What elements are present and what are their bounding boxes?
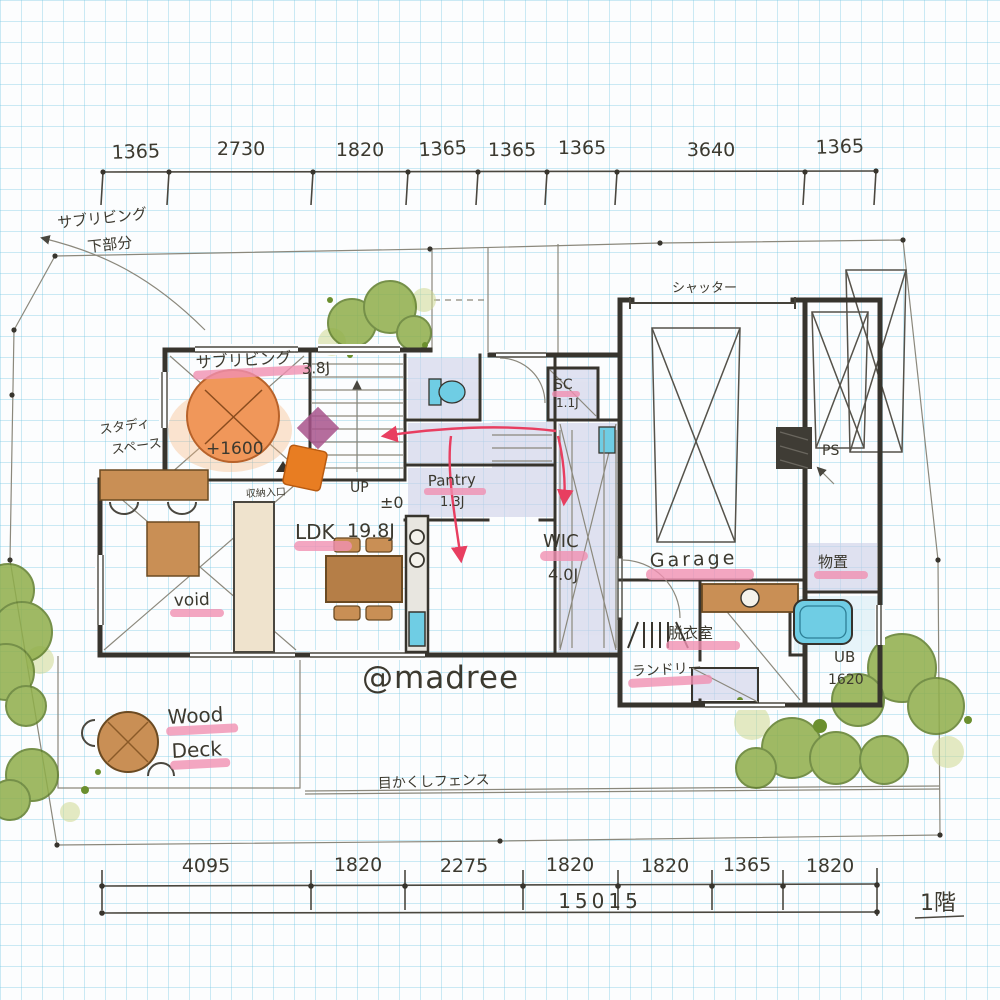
label-bath: UB xyxy=(834,648,855,666)
label-ldk: LDK xyxy=(295,520,336,544)
dim-bottom-2: 2275 xyxy=(440,855,488,877)
dimension-bottom: 4095 1820 2275 1820 1820 1365 1820 15015… xyxy=(99,854,964,918)
chair xyxy=(282,444,327,491)
dim-top-0: 1365 xyxy=(111,140,160,164)
vanity-sink xyxy=(741,589,759,607)
dim-top-2: 1820 xyxy=(336,139,384,161)
label-fence: 目かくしフェンス xyxy=(378,772,490,792)
label-shutter: シャッター xyxy=(672,281,737,296)
dining-table xyxy=(326,556,402,602)
watermark: @madree xyxy=(362,660,519,696)
pipe-space xyxy=(776,427,812,469)
label-ldk-size: 19.8J xyxy=(347,520,395,542)
label-void: void xyxy=(173,590,210,611)
dim-top-6: 3640 xyxy=(687,139,735,161)
label-wic-size: 4.0J xyxy=(548,565,578,584)
label-wood-deck-line2: Deck xyxy=(171,736,223,763)
label-bath-size: 1620 xyxy=(828,672,864,688)
dimension-top: 1365 2730 1820 1365 1365 1365 3640 1365 xyxy=(100,135,878,205)
floor-plan-drawing: 1365 2730 1820 1365 1365 1365 3640 1365 … xyxy=(0,0,1000,1000)
parking-outlines xyxy=(652,270,906,542)
kitchen-sink xyxy=(409,612,425,646)
dim-top-1: 2730 xyxy=(217,138,265,160)
label-garage: Garage xyxy=(649,547,737,572)
label-up: UP xyxy=(350,480,369,496)
dim-bottom-5: 1365 xyxy=(723,854,771,876)
label-wic: WIC xyxy=(543,531,579,552)
toilet-bowl xyxy=(439,381,465,403)
dim-bottom-0: 4095 xyxy=(182,855,230,877)
dim-bottom-6: 1820 xyxy=(806,855,854,877)
dim-bottom-4: 1820 xyxy=(641,855,689,877)
hall-cabinet xyxy=(599,427,615,453)
floor-label: 1階 xyxy=(920,891,956,916)
cushion xyxy=(297,407,339,449)
label-sc-size: 1.1J xyxy=(556,396,579,410)
study-desk xyxy=(100,470,208,500)
label-level-subliving: +1600 xyxy=(206,439,264,459)
garage-shutter xyxy=(630,297,795,309)
label-wood-deck-line1: Wood xyxy=(167,702,224,729)
label-sub-living-size: 3.8J xyxy=(301,359,330,378)
dim-bottom-1: 1820 xyxy=(334,854,382,876)
label-storage: 物置 xyxy=(818,553,848,571)
ldk-rug xyxy=(147,522,199,576)
dim-top-4: 1365 xyxy=(488,139,536,161)
note-subliving-under-line1: サブリビング xyxy=(57,205,148,232)
tv-board xyxy=(234,502,274,652)
label-sc: SC xyxy=(554,377,573,393)
dim-top-7: 1365 xyxy=(815,135,864,159)
dim-bottom-3: 1820 xyxy=(546,854,594,876)
dim-top-5: 1365 xyxy=(558,137,606,159)
label-pantry: Pantry xyxy=(428,470,477,490)
study-chairs xyxy=(110,502,196,514)
dim-total: 15015 xyxy=(558,889,642,913)
label-dressing: 脱衣室 xyxy=(668,624,713,642)
label-ps: PS xyxy=(822,443,839,459)
label-pantry-size: 1.3J xyxy=(440,495,465,510)
note-subliving-under-line2: 下部分 xyxy=(87,233,134,256)
stove-burner xyxy=(410,553,424,567)
label-study-line2: スペース xyxy=(110,436,162,458)
floor-plan-sheet: 1365 2730 1820 1365 1365 1365 3640 1365 … xyxy=(0,0,1000,1000)
label-level-zero: ±0 xyxy=(380,493,404,512)
label-entry: 収納入口 xyxy=(245,485,286,500)
stove-burner xyxy=(410,530,424,544)
dim-top-3: 1365 xyxy=(418,137,467,162)
label-study-line1: スタディ xyxy=(98,415,151,438)
